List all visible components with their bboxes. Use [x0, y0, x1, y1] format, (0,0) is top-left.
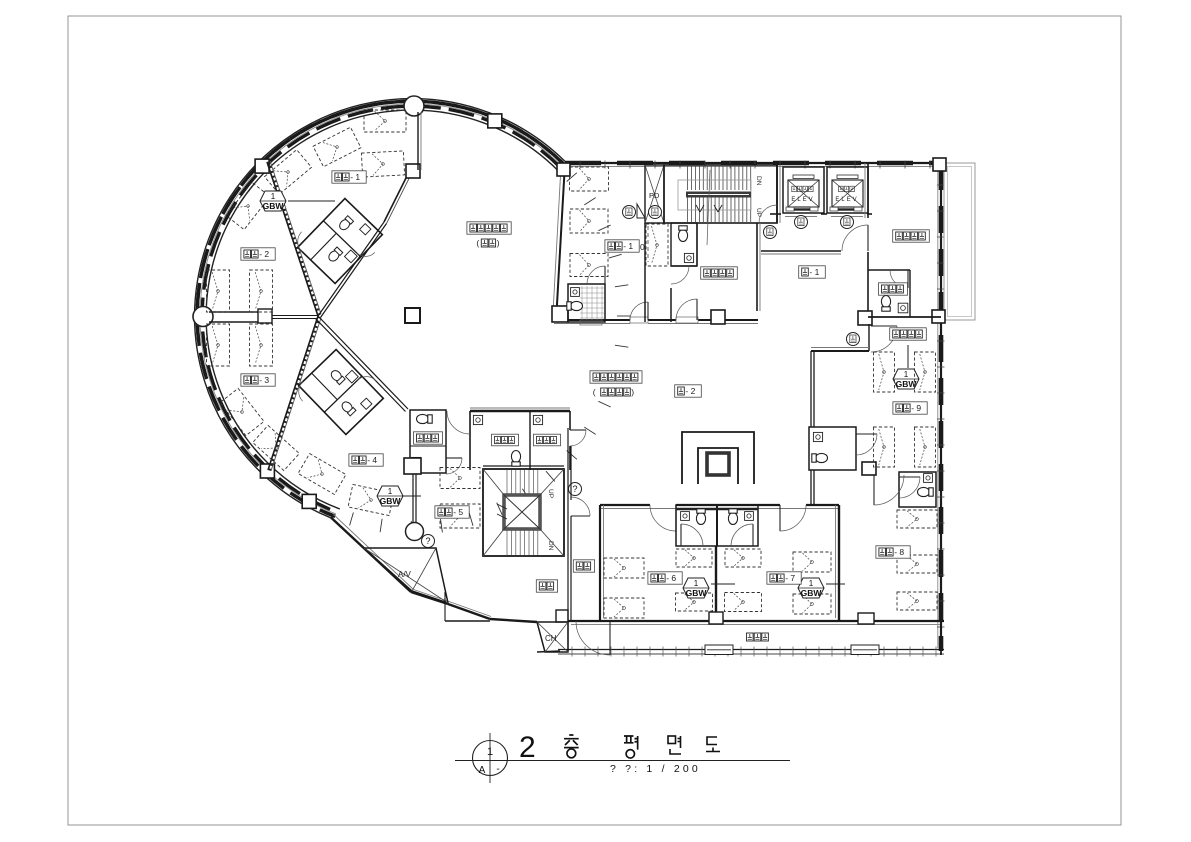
svg-text:- 3: - 3	[259, 375, 269, 385]
svg-text:0: 0	[640, 242, 645, 252]
svg-text:- 2: - 2	[685, 386, 695, 396]
svg-text:UP: UP	[547, 489, 554, 498]
svg-text:2: 2	[519, 731, 536, 764]
svg-text:ELEV: ELEV	[791, 197, 814, 203]
svg-text:1: 1	[487, 746, 493, 758]
svg-text:DN: DN	[755, 176, 762, 186]
svg-text:DN: DN	[547, 541, 554, 551]
svg-text:UP: UP	[755, 208, 762, 217]
svg-text:GBW: GBW	[686, 588, 708, 598]
svg-text:CH: CH	[545, 634, 557, 643]
svg-text:1: 1	[271, 192, 276, 201]
svg-text:- 5: - 5	[453, 507, 463, 517]
svg-text:): )	[631, 387, 634, 397]
svg-text:PD: PD	[649, 191, 660, 200]
svg-text:- 2: - 2	[259, 249, 269, 259]
svg-text:?: ?	[572, 484, 577, 494]
svg-text:- 1: - 1	[623, 241, 633, 251]
svg-text:- 7: - 7	[785, 573, 795, 583]
svg-text:GBW: GBW	[380, 496, 402, 506]
svg-text:A: A	[479, 765, 486, 776]
svg-text:A/V: A/V	[398, 570, 412, 579]
svg-text:1: 1	[904, 370, 909, 379]
svg-text:- 6: - 6	[666, 573, 676, 583]
svg-text:1: 1	[694, 579, 699, 588]
svg-text:- 8: - 8	[894, 547, 904, 557]
svg-text:?: ?	[425, 536, 430, 546]
svg-text:1: 1	[809, 579, 814, 588]
svg-text:GBW: GBW	[801, 588, 823, 598]
svg-text:): )	[497, 238, 500, 248]
svg-text:-: -	[496, 764, 499, 775]
svg-text:ELEV: ELEV	[835, 197, 858, 203]
svg-text:(: (	[593, 387, 596, 397]
svg-text:(: (	[476, 238, 479, 248]
svg-text:? ?: 1 / 200: ? ?: 1 / 200	[610, 763, 701, 775]
svg-text:- 4: - 4	[367, 455, 377, 465]
svg-text:GBW: GBW	[263, 201, 285, 211]
svg-text:- 1: - 1	[809, 267, 819, 277]
svg-text:- 9: - 9	[911, 403, 921, 413]
svg-text:1: 1	[388, 487, 393, 496]
svg-text:- 1: - 1	[350, 172, 360, 182]
